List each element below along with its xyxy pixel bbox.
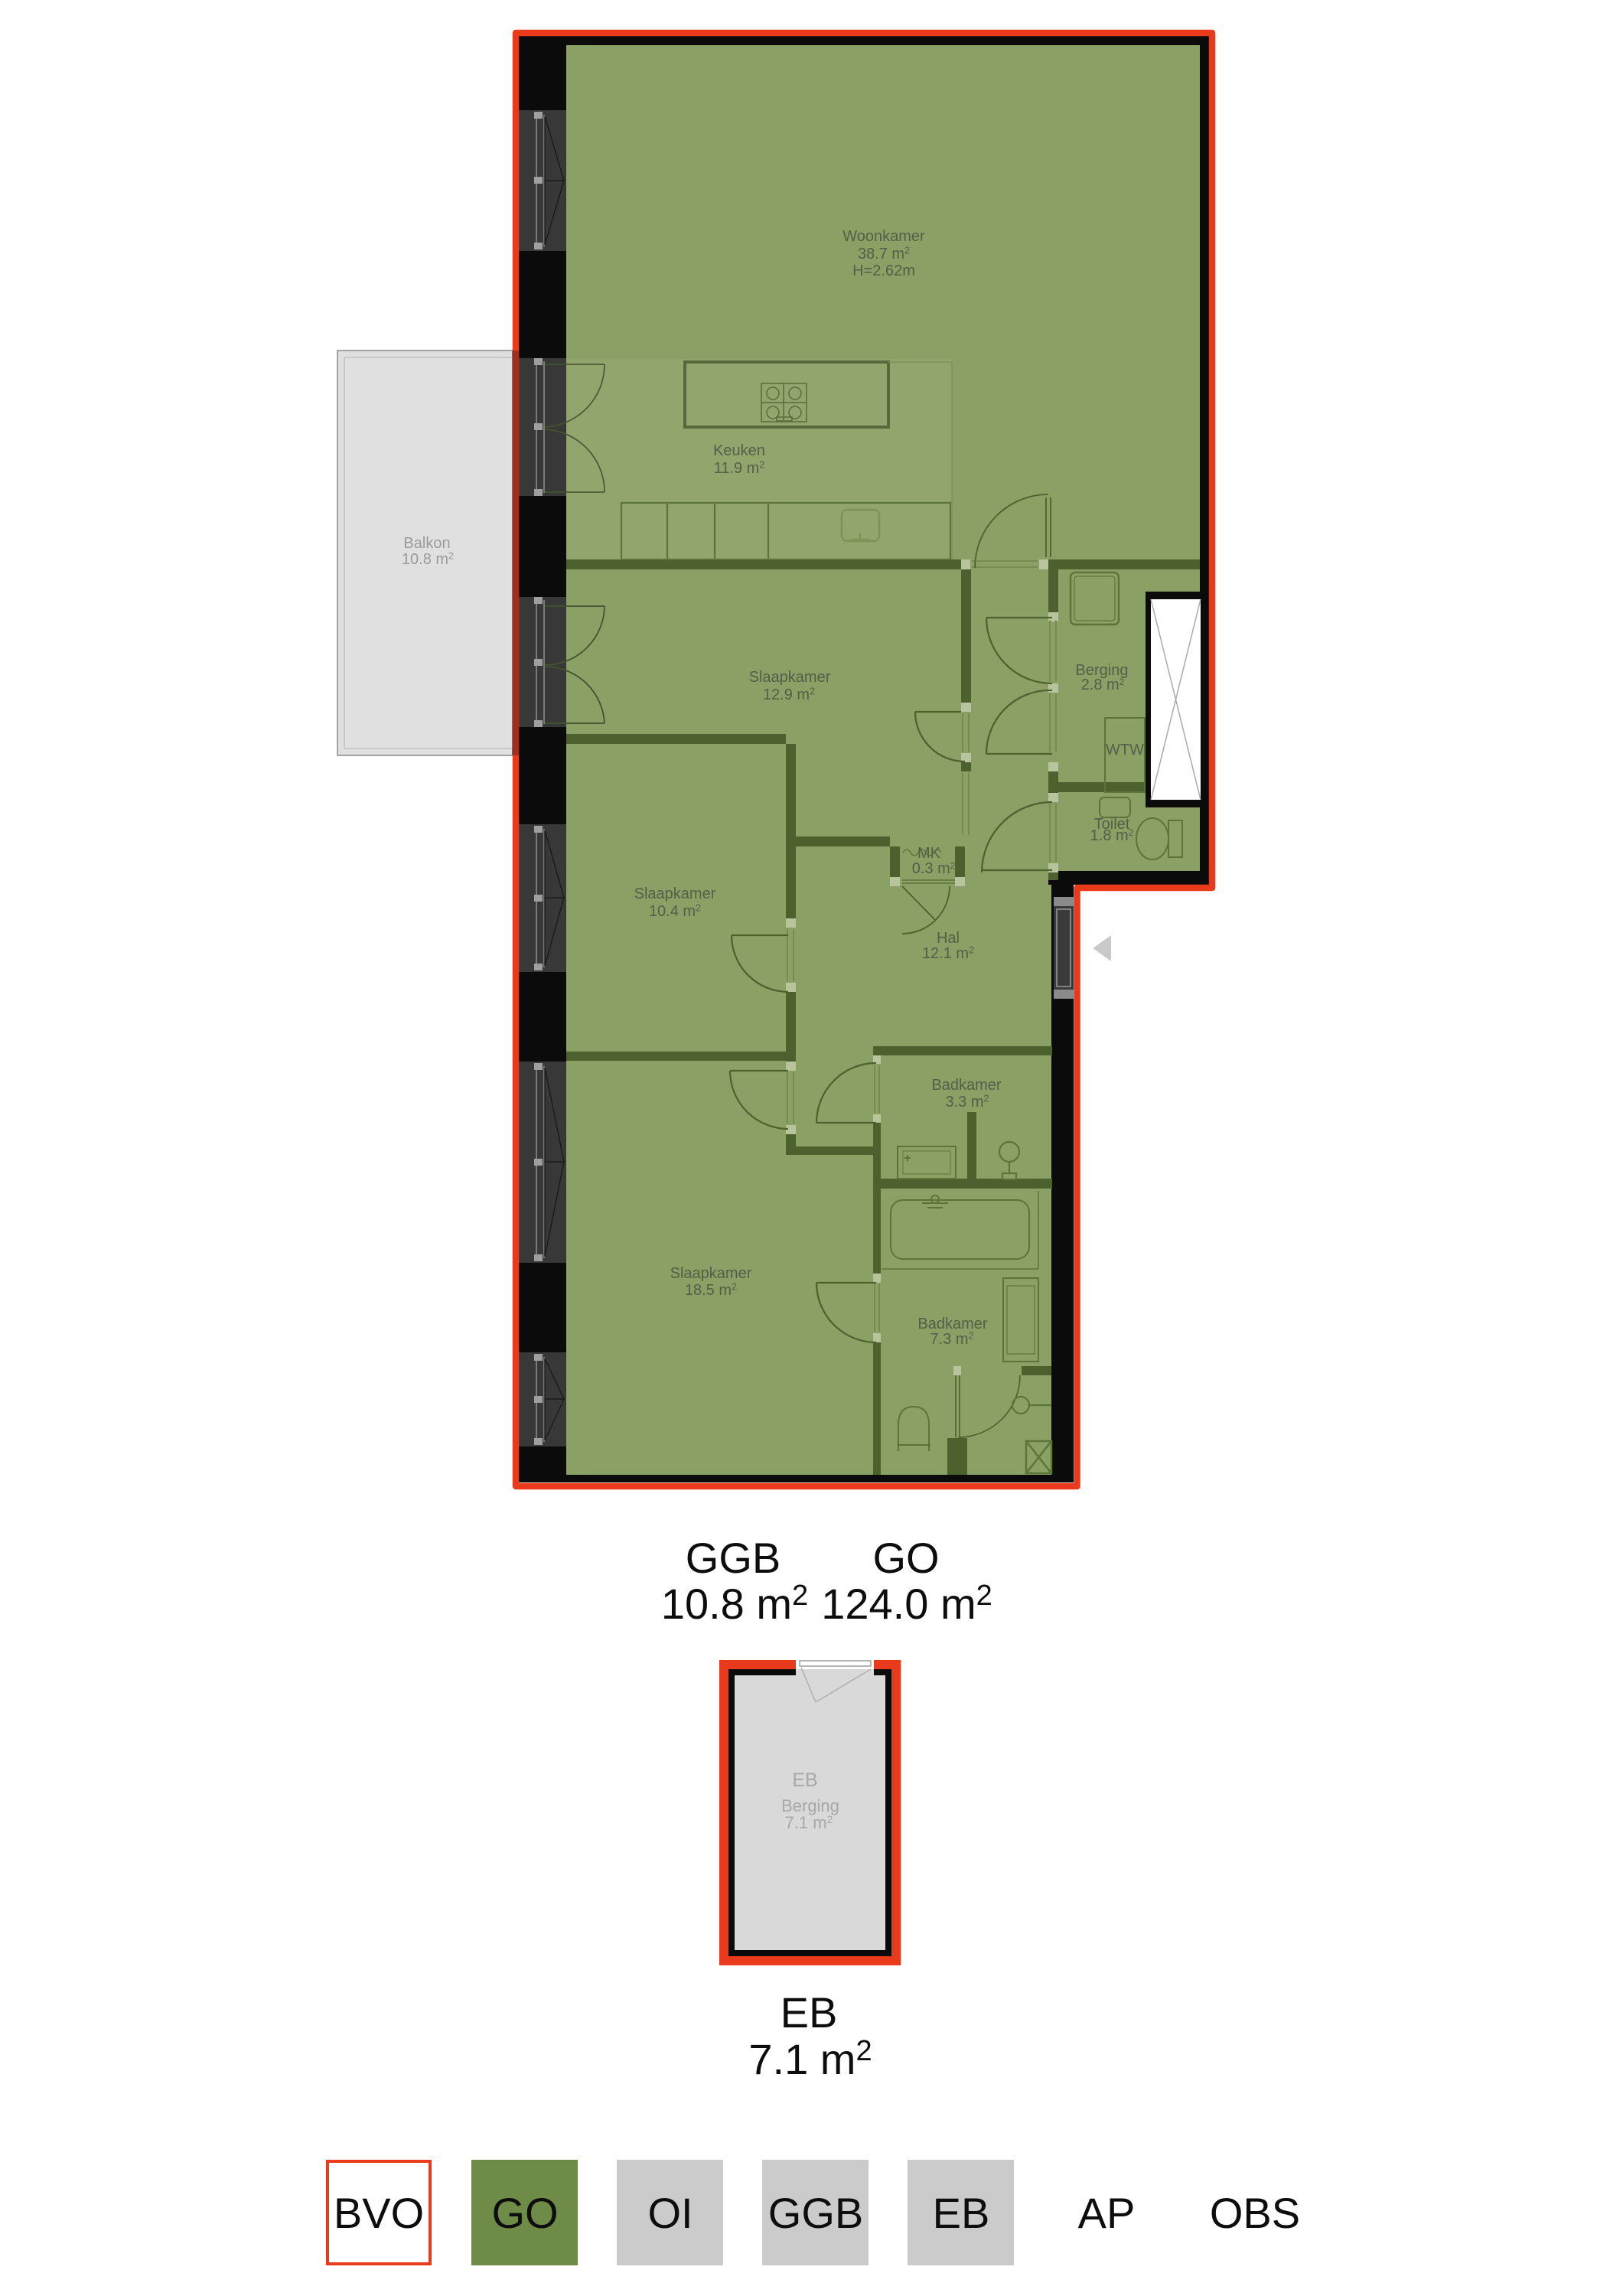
svg-text:GGB: GGB	[768, 2189, 863, 2237]
svg-text:GGB: GGB	[686, 1534, 781, 1582]
svg-text:2.8 m2: 2.8 m2	[1081, 677, 1125, 693]
svg-text:10.8 m2: 10.8 m2	[402, 551, 454, 569]
svg-text:Slaapkamer: Slaapkamer	[670, 1265, 752, 1282]
svg-text:11.9 m2: 11.9 m2	[714, 460, 765, 478]
svg-text:GO: GO	[491, 2189, 558, 2237]
svg-text:18.5 m2: 18.5 m2	[685, 1282, 737, 1300]
svg-text:7.3 m2: 7.3 m2	[930, 1331, 974, 1349]
svg-text:Slaapkamer: Slaapkamer	[634, 885, 716, 902]
svg-text:GO: GO	[872, 1534, 939, 1582]
svg-text:EB: EB	[933, 2189, 990, 2237]
svg-text:MK: MK	[917, 845, 941, 862]
svg-text:Woonkamer: Woonkamer	[842, 228, 925, 245]
svg-text:12.1 m2: 12.1 m2	[922, 945, 974, 963]
svg-text:Slaapkamer: Slaapkamer	[749, 669, 831, 686]
svg-text:Badkamer: Badkamer	[917, 1316, 987, 1332]
svg-text:38.7 m2: 38.7 m2	[858, 246, 910, 263]
svg-text:Keuken: Keuken	[713, 442, 765, 459]
svg-text:EB: EB	[781, 1988, 838, 2037]
svg-text:10.8 m2: 10.8 m2	[661, 1580, 808, 1628]
svg-text:OI: OI	[647, 2189, 693, 2237]
svg-text:Balkon: Balkon	[403, 535, 450, 552]
svg-text:3.3 m2: 3.3 m2	[946, 1094, 989, 1111]
svg-text:7.1 m2: 7.1 m2	[748, 2035, 872, 2083]
svg-text:Badkamer: Badkamer	[931, 1077, 1001, 1094]
svg-text:10.4 m2: 10.4 m2	[649, 903, 701, 921]
svg-text:1.8 m2: 1.8 m2	[1090, 827, 1134, 844]
svg-text:0.3 m2: 0.3 m2	[912, 860, 955, 877]
svg-text:WTW: WTW	[1106, 742, 1144, 758]
svg-text:7.1 m2: 7.1 m2	[785, 1813, 833, 1832]
svg-text:AP: AP	[1078, 2189, 1136, 2237]
svg-text:Hal: Hal	[937, 930, 960, 947]
svg-text:124.0 m2: 124.0 m2	[821, 1580, 992, 1628]
svg-text:12.9 m2: 12.9 m2	[763, 687, 815, 704]
svg-text:H=2.62m: H=2.62m	[852, 263, 915, 279]
svg-text:OBS: OBS	[1210, 2189, 1300, 2237]
svg-text:BVO: BVO	[334, 2189, 424, 2237]
svg-text:EB: EB	[792, 1769, 817, 1791]
